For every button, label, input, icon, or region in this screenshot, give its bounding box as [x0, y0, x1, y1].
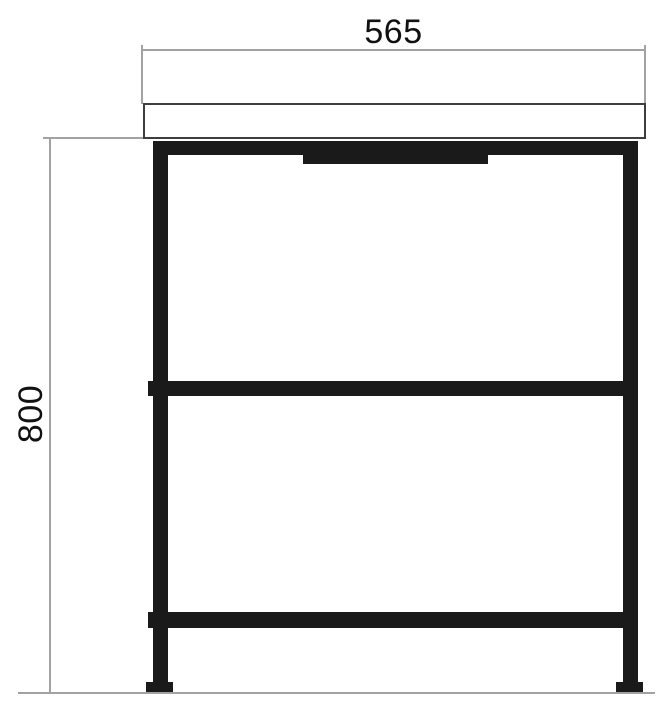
width-dimension-line: [141, 49, 646, 51]
technical-drawing-canvas: 565 800: [0, 0, 672, 720]
width-extension-line-right: [644, 45, 646, 104]
frame-top-rail: [153, 141, 638, 155]
height-dimension-label: 800: [14, 354, 54, 474]
height-dimension-line: [49, 137, 51, 693]
frame-left-foot: [146, 682, 173, 692]
frame-bottom-shelf-rail: [148, 612, 638, 628]
width-dimension-label: 565: [141, 15, 646, 49]
frame-right-leg: [623, 141, 638, 682]
floor-line: [18, 692, 655, 694]
frame-left-leg: [153, 141, 168, 682]
frame-middle-shelf-rail: [148, 381, 638, 396]
width-extension-line-left: [141, 45, 143, 104]
frame-center-bracket: [303, 154, 488, 164]
frame-right-foot: [616, 682, 643, 692]
countertop-slab: [143, 103, 646, 139]
height-extension-line-top: [43, 137, 144, 139]
